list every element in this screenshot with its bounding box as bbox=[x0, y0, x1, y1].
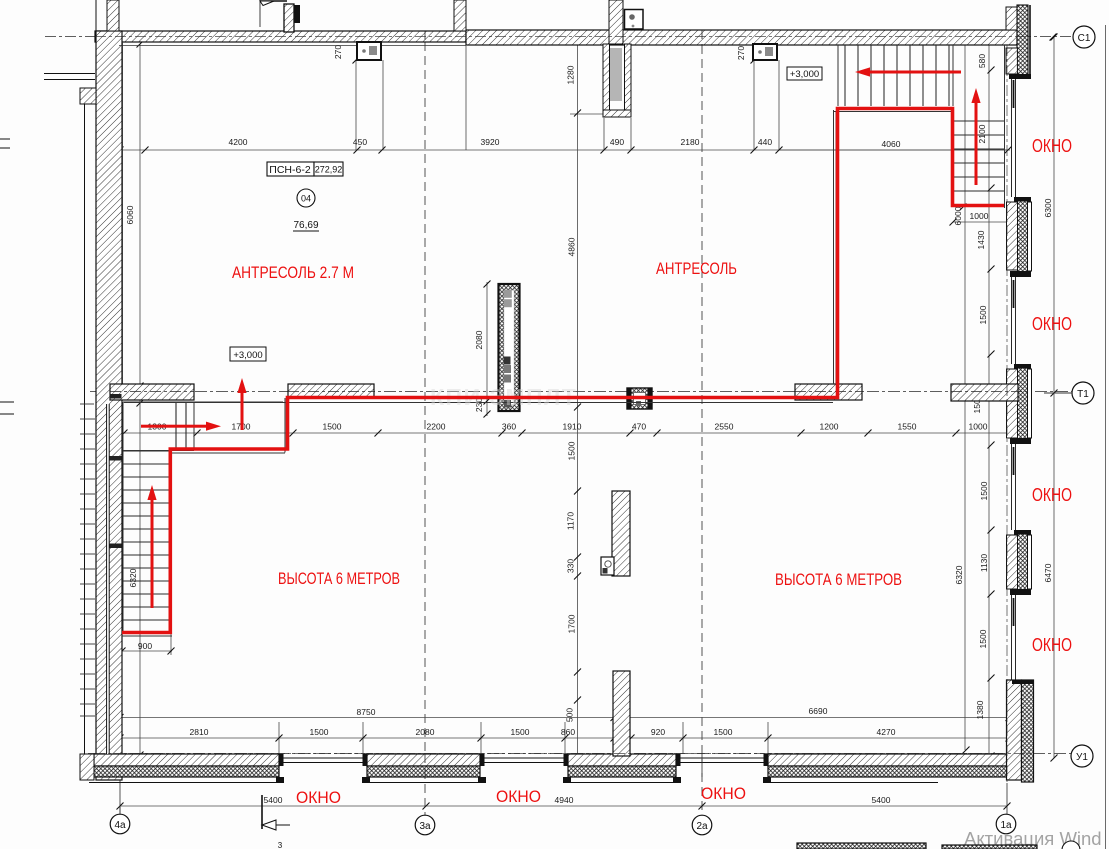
svg-text:1500: 1500 bbox=[511, 727, 530, 737]
svg-text:272,92: 272,92 bbox=[315, 165, 343, 175]
svg-text:+3,000: +3,000 bbox=[790, 69, 819, 80]
svg-text:1500: 1500 bbox=[978, 629, 988, 648]
svg-text:1130: 1130 bbox=[979, 554, 989, 573]
svg-text:АНТРЕСОЛЬ 2.7 М: АНТРЕСОЛЬ 2.7 М bbox=[232, 263, 354, 282]
svg-text:860: 860 bbox=[561, 727, 575, 737]
svg-text:ВЫСОТА 6 МЕТРОВ: ВЫСОТА 6 МЕТРОВ bbox=[775, 571, 902, 589]
svg-text:6060: 6060 bbox=[125, 205, 135, 224]
svg-text:У1: У1 bbox=[1076, 752, 1088, 763]
svg-text:2080: 2080 bbox=[416, 727, 435, 737]
svg-text:3а: 3а bbox=[419, 821, 431, 832]
svg-text:ОКНО: ОКНО bbox=[701, 785, 746, 803]
svg-text:ОКНО: ОКНО bbox=[296, 789, 341, 807]
svg-text:1500: 1500 bbox=[978, 305, 988, 324]
svg-text:1500: 1500 bbox=[567, 441, 577, 460]
svg-text:ОКНО: ОКНО bbox=[1032, 314, 1072, 334]
svg-text:2180: 2180 bbox=[681, 137, 700, 147]
svg-text:2200: 2200 bbox=[427, 422, 446, 432]
svg-text:6690: 6690 bbox=[809, 706, 828, 716]
svg-text:ВЫСОТА 6 МЕТРОВ: ВЫСОТА 6 МЕТРОВ bbox=[278, 570, 400, 588]
svg-text:Т1: Т1 bbox=[1077, 389, 1089, 400]
svg-text:4860: 4860 bbox=[567, 237, 577, 256]
svg-text:1700: 1700 bbox=[567, 614, 577, 633]
svg-text:6320: 6320 bbox=[954, 565, 964, 584]
svg-text:1910: 1910 bbox=[563, 422, 582, 432]
svg-text:ОКНО: ОКНО bbox=[1032, 635, 1072, 655]
svg-text:5400: 5400 bbox=[872, 795, 891, 805]
svg-text:6300: 6300 bbox=[1043, 198, 1053, 217]
svg-text:1500: 1500 bbox=[323, 422, 342, 432]
svg-text:1430: 1430 bbox=[976, 230, 986, 249]
svg-text:С1: С1 bbox=[1078, 33, 1091, 44]
svg-text:920: 920 bbox=[651, 727, 665, 737]
svg-text:270: 270 bbox=[333, 45, 343, 59]
svg-text:1000: 1000 bbox=[969, 422, 988, 432]
svg-text:3920: 3920 bbox=[481, 137, 500, 147]
svg-text:1280: 1280 bbox=[566, 65, 576, 84]
svg-text:2080: 2080 bbox=[474, 330, 484, 349]
svg-text:4940: 4940 bbox=[555, 795, 574, 805]
svg-text:500: 500 bbox=[565, 708, 575, 722]
svg-text:АНТРЕСОЛЬ: АНТРЕСОЛЬ bbox=[656, 259, 737, 278]
svg-text:580: 580 bbox=[977, 54, 987, 68]
svg-text:450: 450 bbox=[353, 137, 367, 147]
svg-text:4060: 4060 bbox=[882, 139, 901, 149]
svg-text:ОКНО: ОКНО bbox=[1032, 485, 1072, 505]
svg-text:330: 330 bbox=[566, 559, 576, 573]
svg-text:6320: 6320 bbox=[128, 568, 138, 587]
svg-text:1500: 1500 bbox=[310, 727, 329, 737]
svg-text:3: 3 bbox=[278, 841, 283, 849]
svg-text:490: 490 bbox=[610, 137, 624, 147]
svg-text:5400: 5400 bbox=[264, 795, 283, 805]
svg-text:2550: 2550 bbox=[715, 422, 734, 432]
svg-text:1500: 1500 bbox=[979, 481, 989, 500]
svg-text:1380: 1380 bbox=[975, 700, 985, 719]
svg-text:+3,000: +3,000 bbox=[233, 350, 262, 361]
svg-text:4а: 4а bbox=[114, 820, 126, 831]
svg-text:04: 04 bbox=[301, 194, 311, 204]
svg-text:1170: 1170 bbox=[566, 512, 576, 531]
svg-text:440: 440 bbox=[758, 137, 772, 147]
svg-text:1000: 1000 bbox=[970, 211, 989, 221]
svg-text:900: 900 bbox=[138, 641, 152, 651]
svg-text:1200: 1200 bbox=[820, 422, 839, 432]
svg-text:8750: 8750 bbox=[357, 707, 376, 717]
svg-text:ОКНО: ОКНО bbox=[496, 788, 541, 806]
svg-text:4270: 4270 bbox=[877, 727, 896, 737]
svg-text:2а: 2а bbox=[696, 821, 708, 832]
svg-text:ОКНО: ОКНО bbox=[1032, 136, 1072, 156]
svg-text:ПСН-6-2: ПСН-6-2 bbox=[269, 164, 311, 176]
svg-text:1500: 1500 bbox=[714, 727, 733, 737]
svg-text:2100: 2100 bbox=[977, 124, 987, 143]
svg-text:2810: 2810 bbox=[190, 727, 209, 737]
svg-text:4200: 4200 bbox=[229, 137, 248, 147]
svg-text:1550: 1550 bbox=[898, 422, 917, 432]
svg-text:470: 470 bbox=[632, 422, 646, 432]
svg-text:6000: 6000 bbox=[953, 206, 963, 225]
svg-text:360: 360 bbox=[502, 422, 516, 432]
svg-text:6470: 6470 bbox=[1043, 563, 1053, 582]
svg-text:76,69: 76,69 bbox=[293, 220, 318, 231]
svg-text:270: 270 bbox=[736, 46, 746, 60]
